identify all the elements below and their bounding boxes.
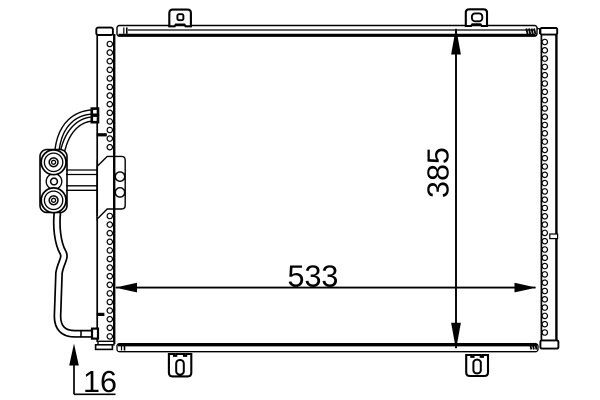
svg-text:533: 533 xyxy=(288,259,339,293)
svg-text:385: 385 xyxy=(422,147,456,198)
svg-text:16: 16 xyxy=(83,365,117,399)
